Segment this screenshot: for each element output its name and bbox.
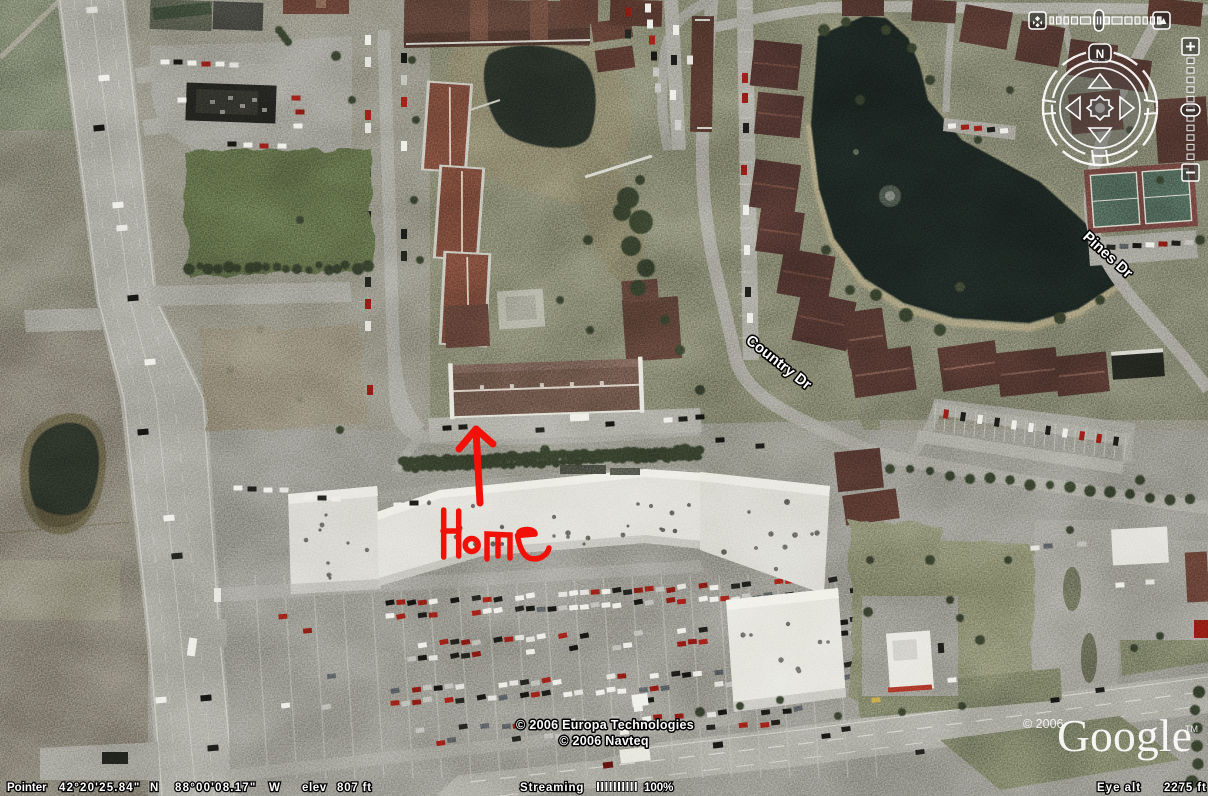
svg-text:© 2006 Navteq: © 2006 Navteq xyxy=(559,734,649,748)
svg-text:Google: Google xyxy=(1057,710,1192,761)
svg-text:TM: TM xyxy=(1185,724,1198,734)
svg-text:N: N xyxy=(150,782,158,794)
svg-text:100%: 100% xyxy=(644,782,673,794)
svg-text:N: N xyxy=(1096,47,1105,61)
svg-text:88°00'08.17": 88°00'08.17" xyxy=(175,782,257,794)
svg-text:807 ft: 807 ft xyxy=(337,782,372,794)
svg-text:Eye alt: Eye alt xyxy=(1097,782,1141,794)
svg-text:W: W xyxy=(269,782,280,794)
svg-text:elev: elev xyxy=(302,782,327,794)
svg-text:© 2006 Europa Technologies: © 2006 Europa Technologies xyxy=(516,718,694,732)
svg-text:42°20'25.84": 42°20'25.84" xyxy=(59,782,141,794)
svg-text:Streaming: Streaming xyxy=(520,782,584,794)
svg-text:2275 ft: 2275 ft xyxy=(1164,782,1207,794)
svg-text:Pointer: Pointer xyxy=(7,782,47,794)
